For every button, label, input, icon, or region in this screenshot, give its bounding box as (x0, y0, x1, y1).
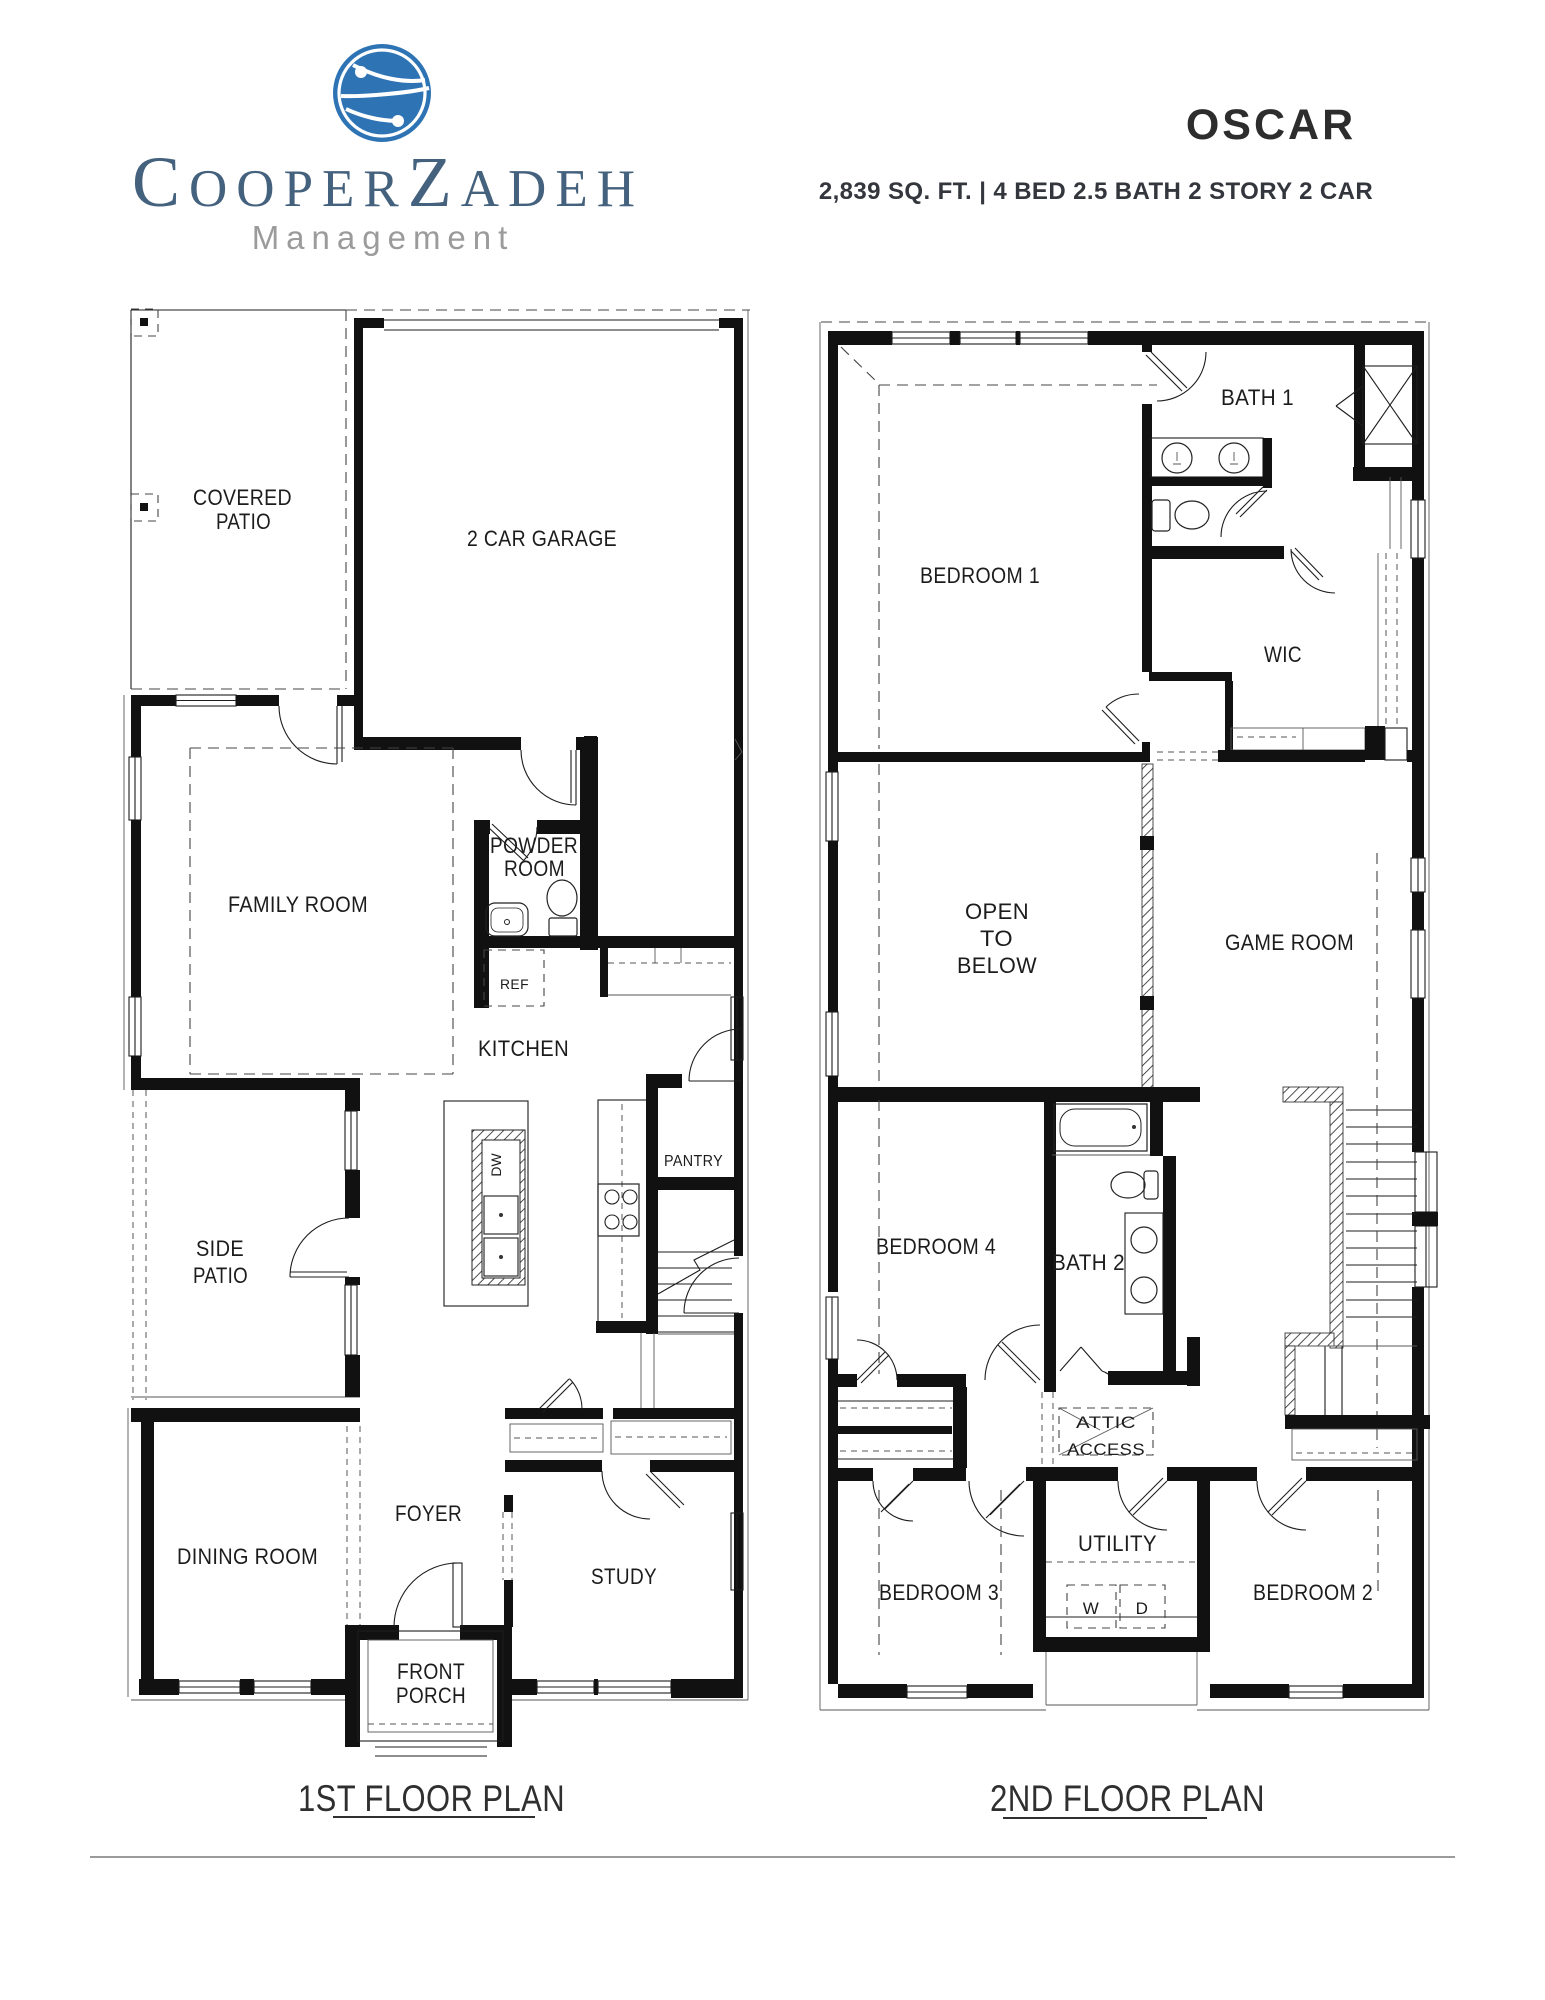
svg-text:2,839 SQ. FT. | 4 BED 2.5 BATH: 2,839 SQ. FT. | 4 BED 2.5 BATH 2 STORY 2… (819, 178, 1373, 205)
svg-text:DINING ROOM: DINING ROOM (177, 1544, 318, 1569)
svg-text:FOYER: FOYER (395, 1501, 462, 1526)
svg-text:FAMILY ROOM: FAMILY ROOM (228, 892, 368, 917)
svg-text:OPEN: OPEN (965, 899, 1029, 924)
svg-text:POWDER: POWDER (490, 833, 578, 858)
svg-text:W: W (1083, 1599, 1099, 1618)
svg-text:REF: REF (500, 976, 529, 992)
svg-text:WIC: WIC (1264, 642, 1302, 667)
svg-text:2ND FLOOR PLAN: 2ND FLOOR PLAN (990, 1778, 1265, 1819)
svg-text:ATTIC: ATTIC (1076, 1413, 1136, 1432)
svg-text:PATIO: PATIO (216, 509, 271, 534)
svg-text:FRONT: FRONT (397, 1659, 465, 1684)
svg-text:GAME ROOM: GAME ROOM (1225, 930, 1354, 955)
svg-text:UTILITY: UTILITY (1078, 1531, 1157, 1556)
svg-text:PORCH: PORCH (396, 1683, 466, 1708)
svg-text:DW: DW (488, 1153, 504, 1177)
svg-text:OSCAR: OSCAR (1186, 101, 1356, 149)
svg-text:COVERED: COVERED (193, 485, 292, 510)
svg-text:BATH 2: BATH 2 (1052, 1250, 1125, 1275)
svg-text:BATH 1: BATH 1 (1221, 385, 1294, 410)
svg-text:TO: TO (980, 926, 1013, 951)
svg-text:BEDROOM 3: BEDROOM 3 (879, 1580, 999, 1605)
svg-text:BEDROOM 2: BEDROOM 2 (1253, 1580, 1373, 1605)
svg-text:Management: Management (252, 219, 515, 256)
svg-text:PANTRY: PANTRY (664, 1153, 723, 1170)
svg-text:ROOM: ROOM (504, 856, 565, 881)
svg-text:STUDY: STUDY (591, 1564, 657, 1589)
svg-text:ACCESS: ACCESS (1067, 1440, 1145, 1459)
svg-text:BEDROOM 1: BEDROOM 1 (920, 563, 1040, 588)
svg-text:SIDE: SIDE (196, 1236, 244, 1261)
svg-text:D: D (1136, 1599, 1149, 1618)
svg-text:1ST FLOOR PLAN: 1ST FLOOR PLAN (298, 1778, 565, 1819)
svg-text:PATIO: PATIO (193, 1263, 248, 1288)
svg-text:BEDROOM 4: BEDROOM 4 (876, 1234, 996, 1259)
svg-text:KITCHEN: KITCHEN (478, 1036, 569, 1061)
svg-text:BELOW: BELOW (957, 953, 1037, 978)
svg-text:2 CAR GARAGE: 2 CAR GARAGE (467, 526, 617, 551)
